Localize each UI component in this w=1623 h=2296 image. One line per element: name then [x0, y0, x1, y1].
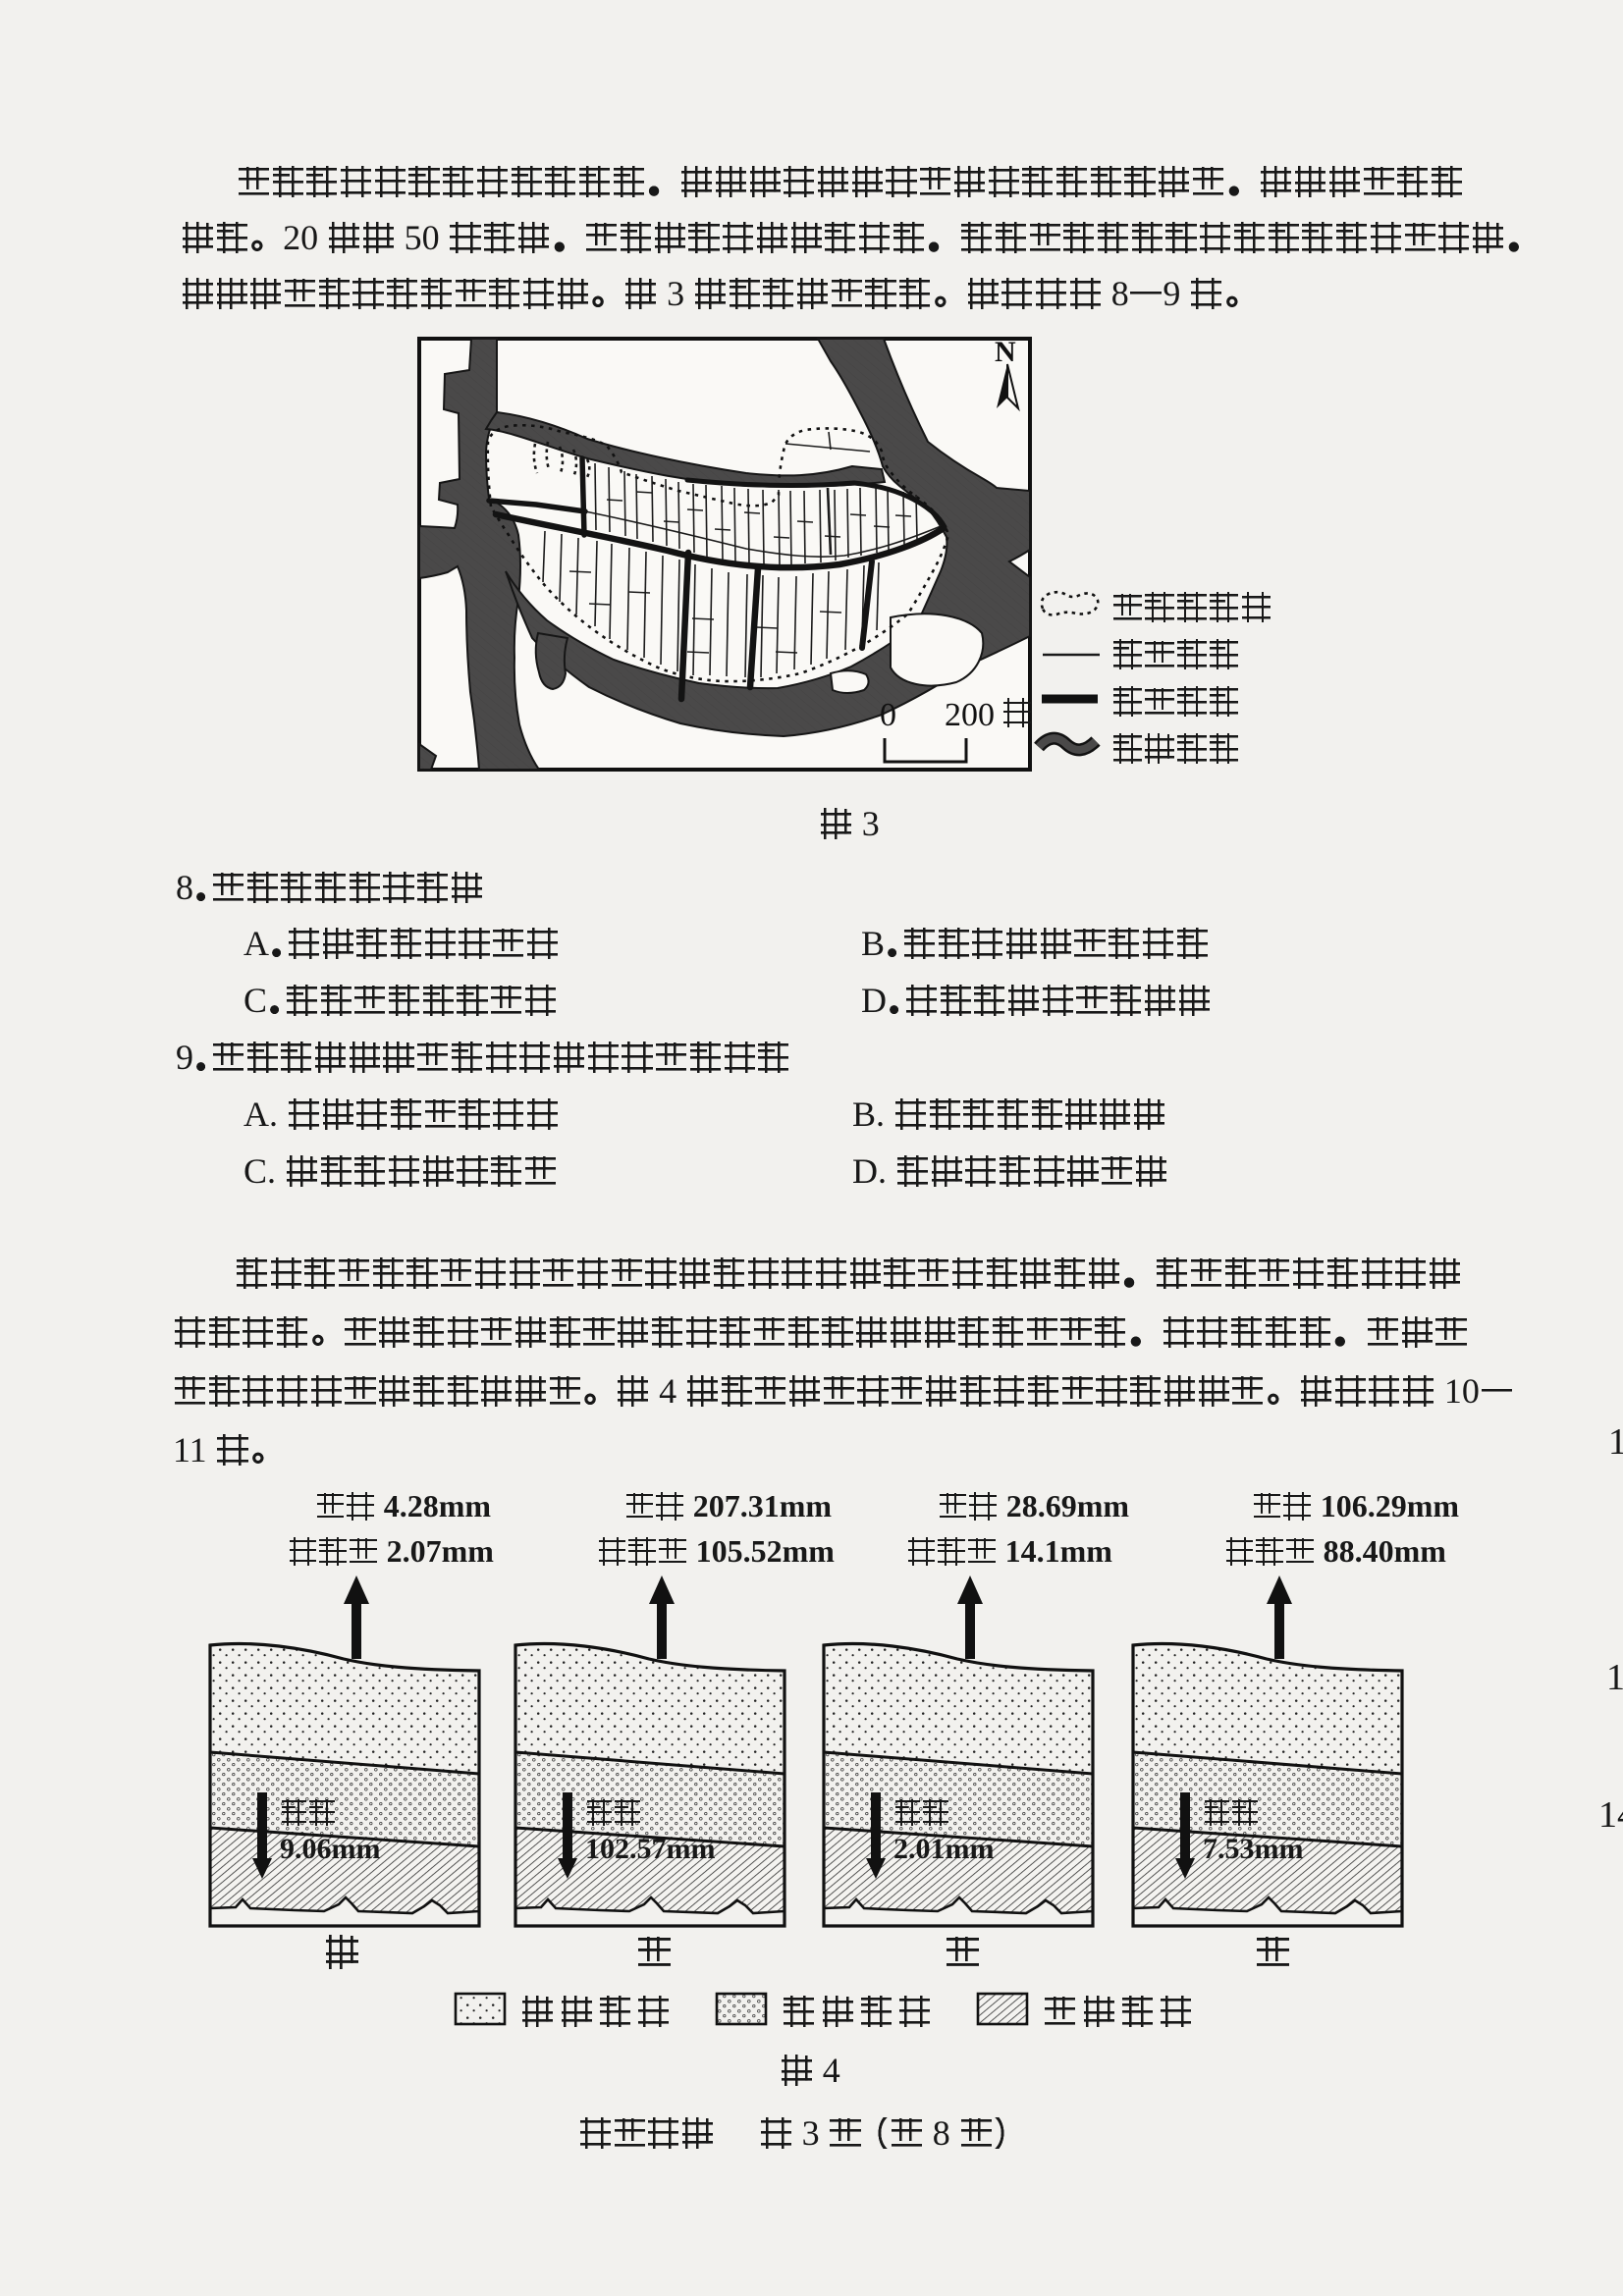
svg-text:N: N [995, 337, 1016, 368]
svg-text:200: 200 [945, 697, 995, 733]
svg-text:0: 0 [880, 697, 896, 733]
